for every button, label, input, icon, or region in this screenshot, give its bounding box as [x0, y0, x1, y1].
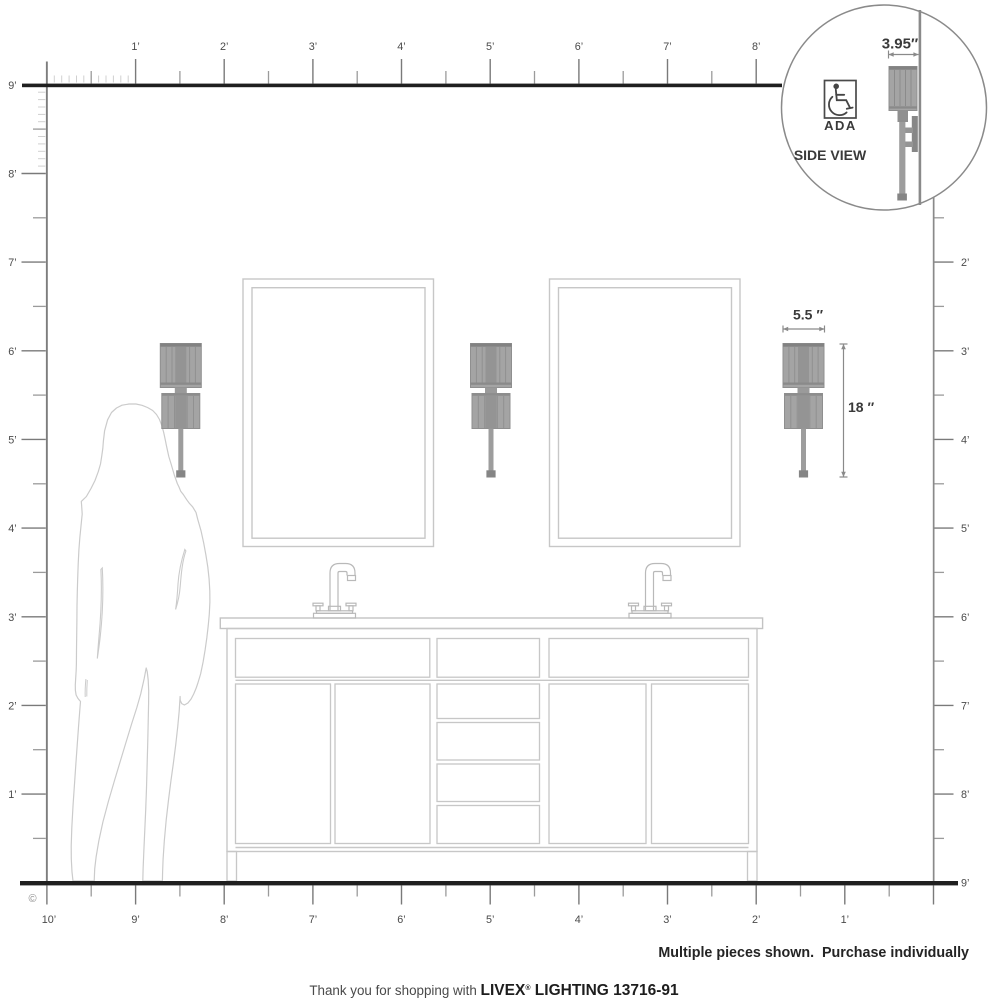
- svg-text:9’: 9’: [961, 878, 969, 890]
- svg-text:6’: 6’: [575, 41, 583, 53]
- svg-text:5’: 5’: [486, 41, 494, 53]
- svg-text:8’: 8’: [220, 914, 228, 926]
- svg-text:2’: 2’: [8, 700, 16, 712]
- svg-text:Thank you for shopping with LI: Thank you for shopping with LIVEX® LIGHT…: [309, 982, 679, 999]
- svg-text:3’: 3’: [961, 346, 969, 358]
- svg-text:6’: 6’: [961, 612, 969, 624]
- svg-text:8’: 8’: [752, 41, 760, 53]
- svg-text:ADA: ADA: [824, 118, 857, 133]
- svg-text:3’: 3’: [309, 41, 317, 53]
- svg-text:4’: 4’: [397, 41, 405, 53]
- svg-text:8’: 8’: [961, 789, 969, 801]
- svg-text:SIDE VIEW: SIDE VIEW: [794, 147, 867, 163]
- svg-text:3’: 3’: [8, 612, 16, 624]
- svg-text:1’: 1’: [131, 41, 139, 53]
- svg-text:8’: 8’: [8, 169, 16, 181]
- svg-text:5’: 5’: [8, 434, 16, 446]
- svg-text:1’: 1’: [8, 789, 16, 801]
- svg-text:6’: 6’: [397, 914, 405, 926]
- svg-text:7’: 7’: [309, 914, 317, 926]
- svg-text:5’: 5’: [961, 523, 969, 535]
- svg-text:6’: 6’: [8, 346, 16, 358]
- svg-text:4’: 4’: [575, 914, 583, 926]
- svg-text:9’: 9’: [8, 80, 16, 92]
- svg-text:7’: 7’: [663, 41, 671, 53]
- svg-text:10’: 10’: [42, 914, 56, 926]
- svg-text:2’: 2’: [220, 41, 228, 53]
- svg-text:2’: 2’: [752, 914, 760, 926]
- svg-text:7’: 7’: [8, 257, 16, 269]
- svg-text:3.95″: 3.95″: [882, 36, 918, 53]
- svg-text:3’: 3’: [663, 914, 671, 926]
- svg-text:9’: 9’: [131, 914, 139, 926]
- svg-text:©: ©: [28, 893, 36, 905]
- svg-text:4’: 4’: [961, 434, 969, 446]
- svg-text:18 ″: 18 ″: [848, 399, 874, 415]
- svg-text:5’: 5’: [486, 914, 494, 926]
- svg-text:4’: 4’: [8, 523, 16, 535]
- svg-text:7’: 7’: [961, 700, 969, 712]
- svg-text:Multiple pieces shown. Purcha: Multiple pieces shown. Purchase individu…: [658, 945, 969, 961]
- svg-text:1’: 1’: [841, 914, 849, 926]
- svg-text:5.5 ″: 5.5 ″: [793, 307, 823, 323]
- svg-text:2’: 2’: [961, 257, 969, 269]
